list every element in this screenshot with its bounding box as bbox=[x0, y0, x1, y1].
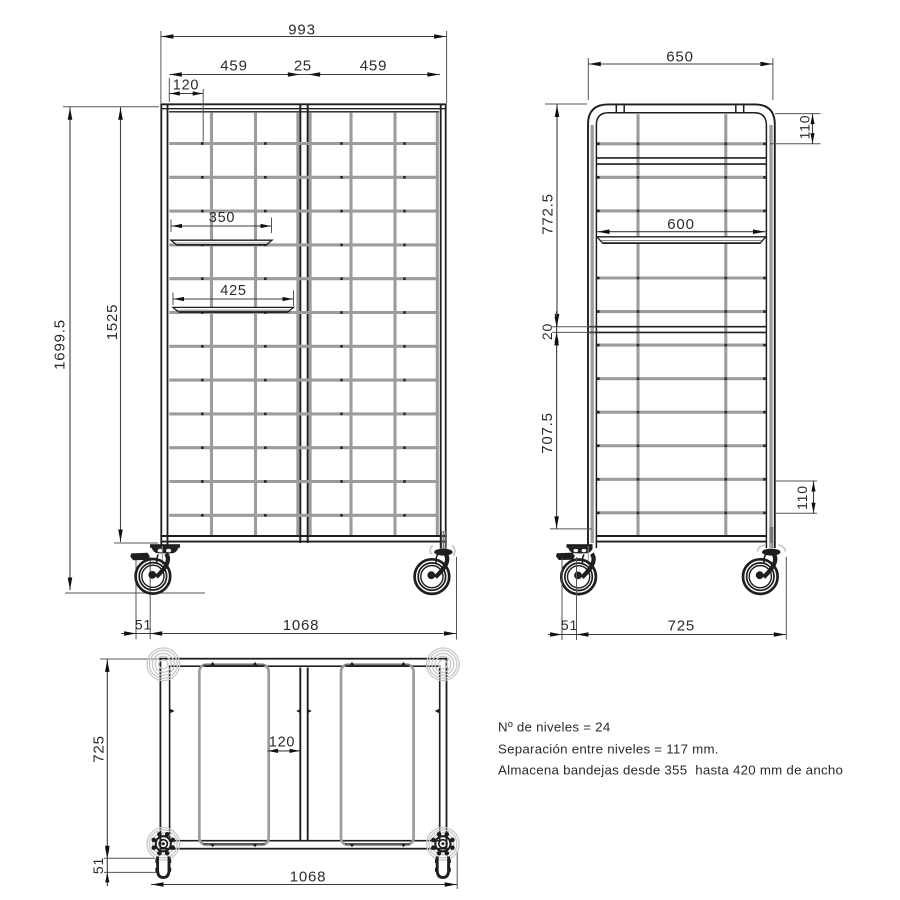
svg-text:120: 120 bbox=[269, 735, 296, 751]
svg-text:1068: 1068 bbox=[283, 617, 320, 634]
svg-text:1699.5: 1699.5 bbox=[52, 319, 69, 370]
svg-text:120: 120 bbox=[173, 78, 200, 94]
svg-text:Separación entre niveles = 117: Separación entre niveles = 117 mm. bbox=[498, 742, 719, 757]
svg-text:650: 650 bbox=[666, 49, 693, 66]
svg-text:1068: 1068 bbox=[290, 869, 327, 886]
svg-text:110: 110 bbox=[794, 485, 810, 510]
svg-text:110: 110 bbox=[797, 115, 813, 140]
svg-text:725: 725 bbox=[91, 735, 108, 762]
svg-text:51: 51 bbox=[90, 857, 106, 874]
svg-text:350: 350 bbox=[209, 210, 236, 226]
svg-text:25: 25 bbox=[294, 58, 312, 75]
svg-text:772.5: 772.5 bbox=[540, 193, 557, 235]
svg-text:51: 51 bbox=[561, 617, 578, 633]
svg-text:600: 600 bbox=[667, 216, 694, 233]
svg-text:425: 425 bbox=[220, 283, 247, 299]
svg-text:459: 459 bbox=[360, 58, 387, 75]
svg-text:459: 459 bbox=[220, 58, 247, 75]
svg-text:707.5: 707.5 bbox=[539, 412, 556, 454]
svg-text:51: 51 bbox=[135, 617, 152, 633]
svg-text:993: 993 bbox=[288, 22, 315, 39]
svg-text:725: 725 bbox=[668, 618, 695, 635]
svg-text:Nº de niveles = 24: Nº de niveles = 24 bbox=[498, 720, 610, 735]
svg-text:1525: 1525 bbox=[104, 304, 121, 341]
svg-text:Almacena bandejas desde 355 h: Almacena bandejas desde 355 hasta 420 mm… bbox=[498, 763, 843, 778]
svg-text:20: 20 bbox=[539, 323, 555, 340]
